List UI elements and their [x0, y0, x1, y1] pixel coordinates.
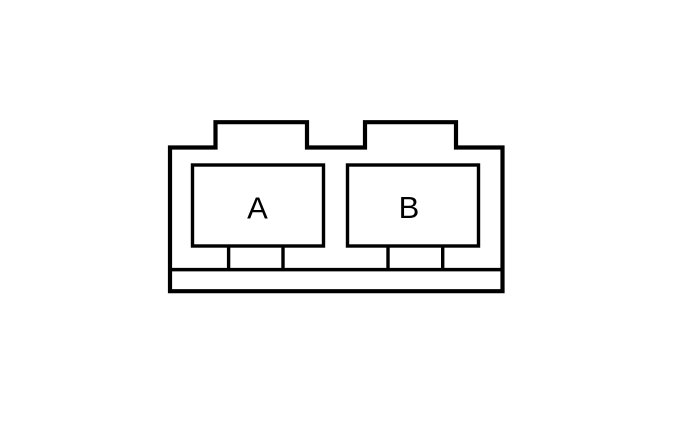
svg-text:A: A [247, 190, 268, 225]
svg-text:B: B [399, 190, 420, 225]
